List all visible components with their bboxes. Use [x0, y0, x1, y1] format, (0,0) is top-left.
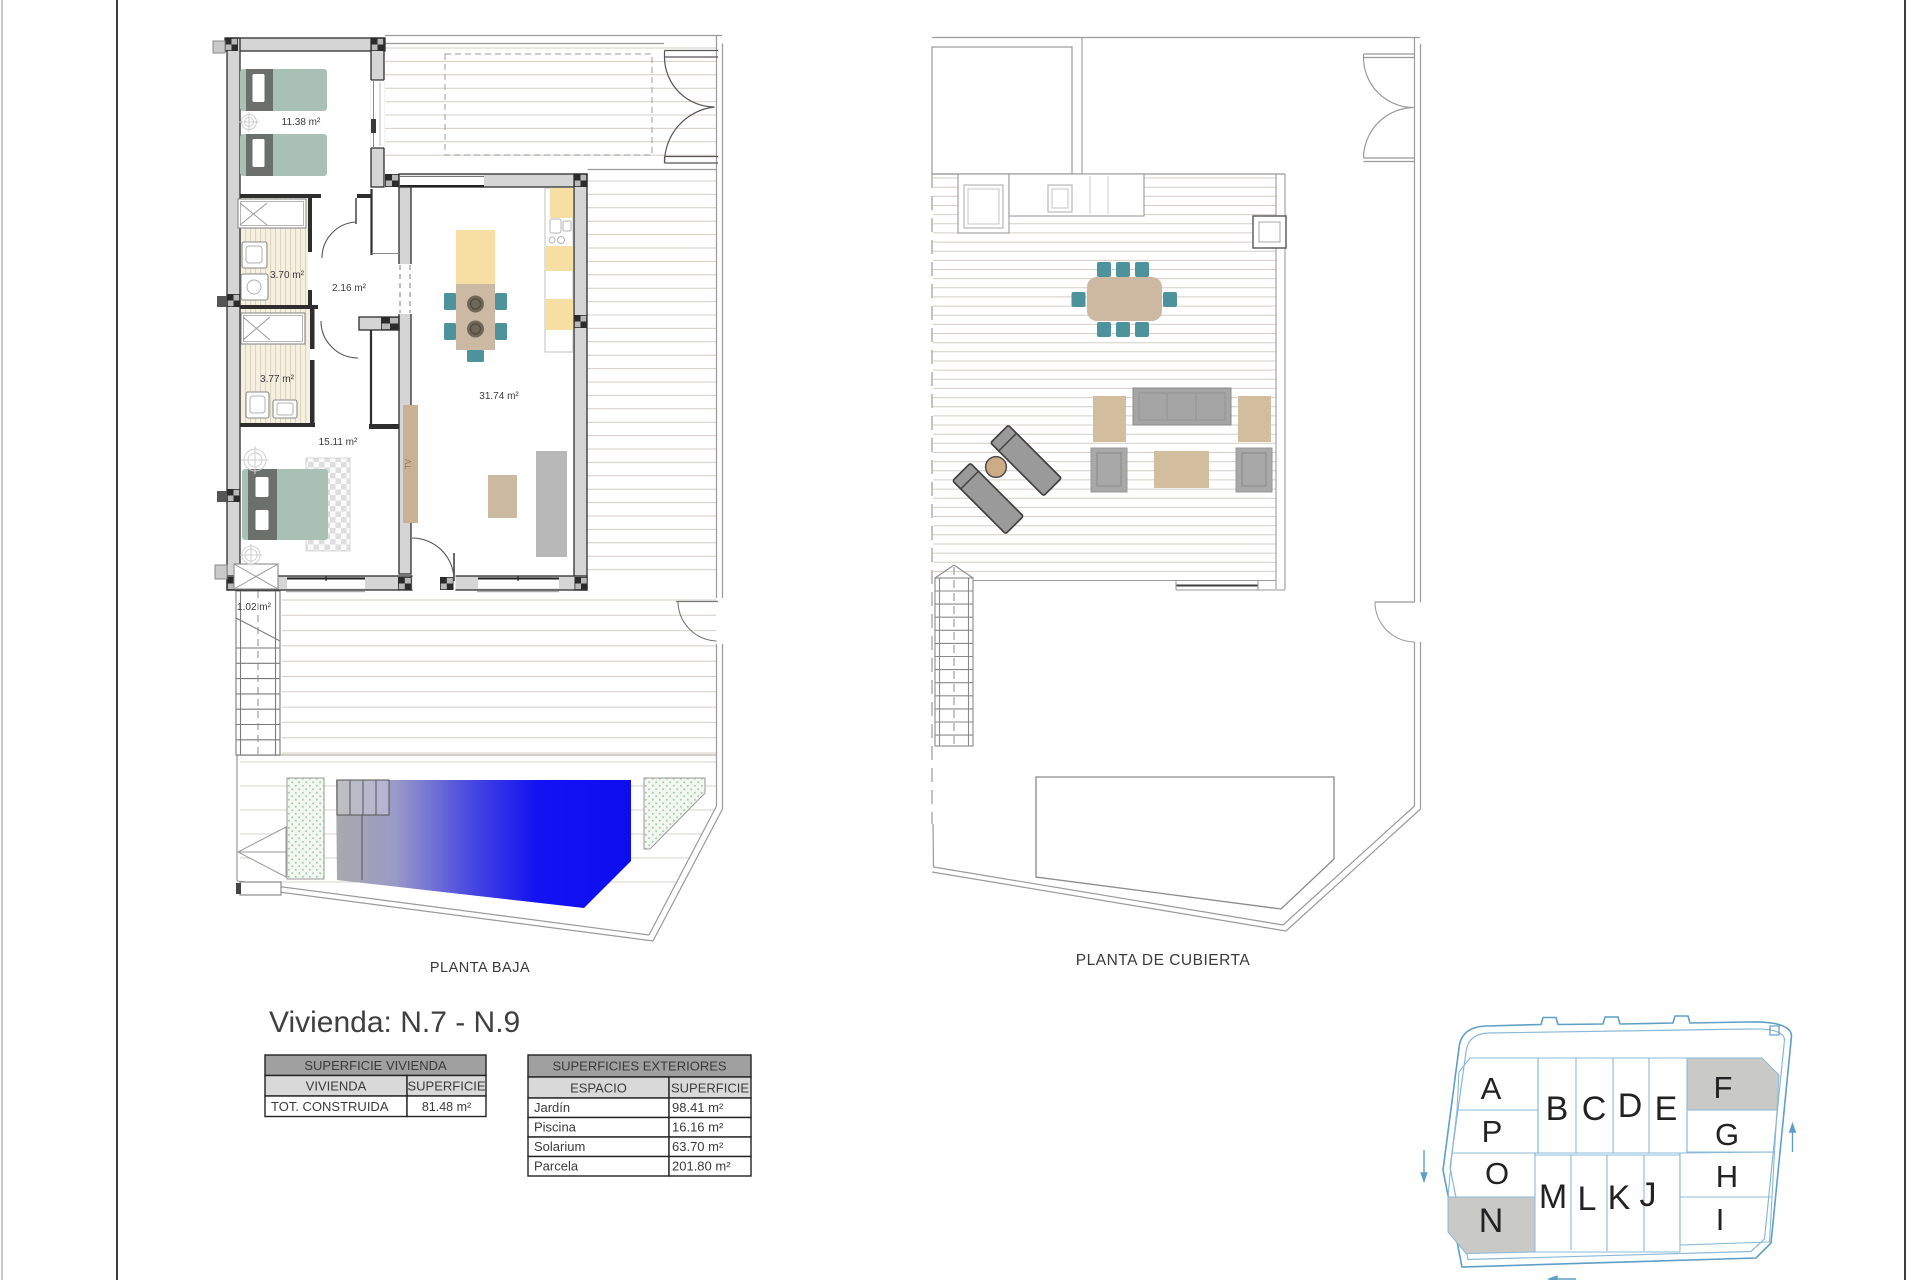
svg-text:D: D — [1618, 1087, 1643, 1125]
svg-text:TOT. CONSTRUIDA: TOT. CONSTRUIDA — [271, 1099, 389, 1114]
svg-text:K: K — [1608, 1179, 1631, 1217]
svg-text:PLANTA DE CUBIERTA: PLANTA DE CUBIERTA — [1076, 952, 1251, 969]
svg-text:SUPERFICIE: SUPERFICIE — [671, 1081, 749, 1096]
svg-text:PLANTA BAJA: PLANTA BAJA — [430, 960, 530, 976]
svg-text:11.38 m²: 11.38 m² — [282, 117, 321, 128]
svg-text:201.80 m²: 201.80 m² — [672, 1159, 731, 1174]
svg-text:Jardín: Jardín — [534, 1100, 570, 1115]
svg-text:VIVIENDA: VIVIENDA — [306, 1079, 367, 1094]
svg-text:C: C — [1582, 1090, 1607, 1128]
svg-text:O: O — [1485, 1156, 1509, 1191]
svg-text:Solarium: Solarium — [534, 1139, 585, 1154]
svg-text:M: M — [1539, 1178, 1567, 1216]
svg-text:3.70 m²: 3.70 m² — [270, 270, 305, 281]
svg-text:31.74 m²: 31.74 m² — [479, 391, 519, 402]
svg-text:ESPACIO: ESPACIO — [570, 1081, 627, 1096]
svg-text:P: P — [1482, 1114, 1503, 1149]
svg-text:1.02 m²: 1.02 m² — [237, 602, 272, 613]
svg-text:Vivienda: N.7 - N.9: Vivienda: N.7 - N.9 — [269, 1006, 520, 1039]
svg-text:2.16 m²: 2.16 m² — [332, 283, 367, 294]
svg-text:E: E — [1655, 1090, 1678, 1128]
svg-text:3.77 m²: 3.77 m² — [260, 374, 295, 385]
svg-text:H: H — [1716, 1159, 1738, 1194]
svg-text:N: N — [1479, 1202, 1504, 1240]
svg-text:Piscina: Piscina — [534, 1120, 577, 1135]
svg-text:SUPERFICIES EXTERIORES: SUPERFICIES EXTERIORES — [552, 1059, 726, 1074]
svg-text:81.48 m²: 81.48 m² — [422, 1100, 471, 1114]
svg-text:15.11 m²: 15.11 m² — [319, 437, 358, 448]
svg-text:L: L — [1578, 1180, 1597, 1218]
svg-text:A: A — [1481, 1071, 1502, 1106]
svg-text:SUPERFICIE VIVIENDA: SUPERFICIE VIVIENDA — [304, 1058, 447, 1073]
svg-text:98.41 m²: 98.41 m² — [672, 1100, 724, 1115]
svg-text:B: B — [1546, 1090, 1569, 1128]
svg-text:63.70 m²: 63.70 m² — [672, 1139, 724, 1154]
svg-text:J: J — [1640, 1176, 1657, 1214]
svg-text:16.16 m²: 16.16 m² — [672, 1120, 724, 1135]
svg-text:F: F — [1714, 1070, 1733, 1105]
svg-text:SUPERFICIE: SUPERFICIE — [407, 1079, 485, 1094]
svg-text:G: G — [1715, 1117, 1739, 1152]
svg-text:TV: TV — [404, 458, 413, 469]
svg-text:I: I — [1716, 1202, 1725, 1237]
svg-text:Parcela: Parcela — [534, 1159, 579, 1174]
